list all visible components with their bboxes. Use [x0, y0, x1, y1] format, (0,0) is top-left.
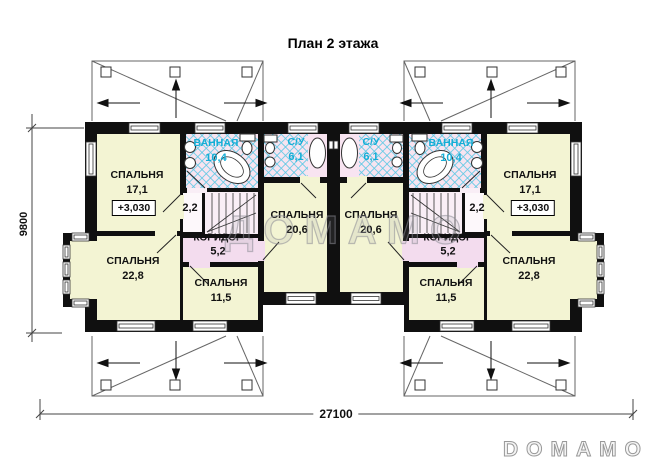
dimension-overall-depth: 9800 — [18, 208, 30, 240]
room-label-bedroom-17-right: СПАЛЬНЯ 17,1 — [504, 169, 557, 197]
room-label-bedroom-22-left: СПАЛЬНЯ 22,8 — [107, 255, 160, 283]
elevation-mark-left: +3,030 — [112, 200, 156, 216]
room-label-bathroom-left: ВАННАЯ 10,4 — [194, 137, 239, 165]
watermark-text: ДОМАМО — [225, 209, 471, 254]
brand-logo: DOMAMO — [503, 438, 649, 462]
floor-plan-canvas: План 2 этажа — [0, 0, 665, 470]
room-label-bathroom-right: ВАННАЯ 10,4 — [429, 137, 474, 165]
room-label-wc-left: С/У 6,1 — [287, 136, 304, 164]
room-label-wc-right: С/У 6,1 — [362, 136, 379, 164]
elevation-mark-right: +3,030 — [511, 200, 555, 216]
dimension-overall-width: 27100 — [313, 407, 358, 421]
room-label-bedroom-22-right: СПАЛЬНЯ 22,8 — [503, 255, 556, 283]
room-label-bedroom-11-left: СПАЛЬНЯ 11,5 — [195, 277, 248, 305]
room-label-bedroom-11-right: СПАЛЬНЯ 11,5 — [420, 277, 473, 305]
room-label-closet-right: 2,2 — [469, 201, 484, 215]
room-label-bedroom-17-left: СПАЛЬНЯ 17,1 — [111, 169, 164, 197]
room-label-closet-left: 2,2 — [182, 201, 197, 215]
